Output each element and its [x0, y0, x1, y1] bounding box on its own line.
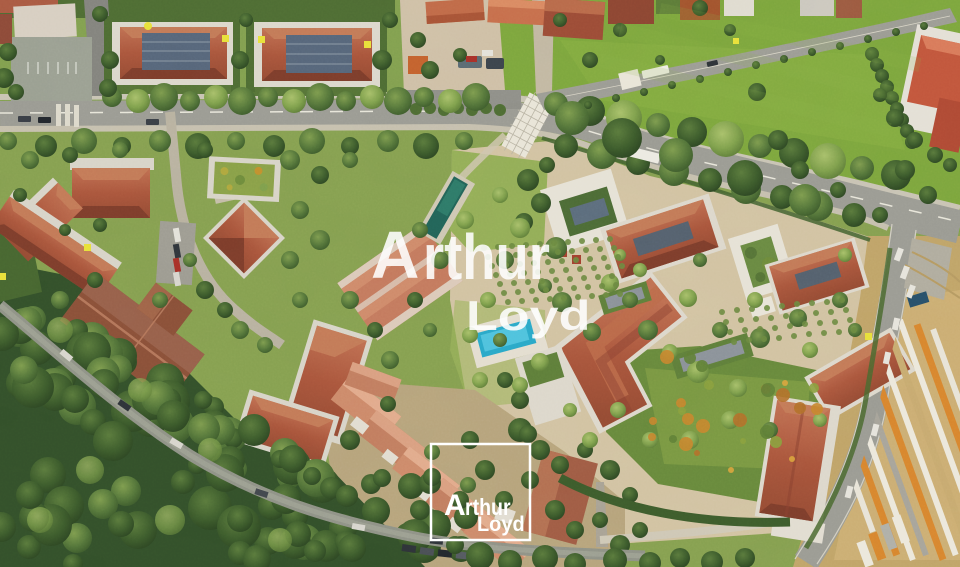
svg-text:rthur: rthur [423, 221, 550, 293]
svg-text:Loyd: Loyd [466, 293, 590, 340]
svg-text:A: A [371, 218, 419, 293]
svg-text:A: A [444, 489, 466, 522]
svg-text:Loyd: Loyd [477, 513, 525, 537]
